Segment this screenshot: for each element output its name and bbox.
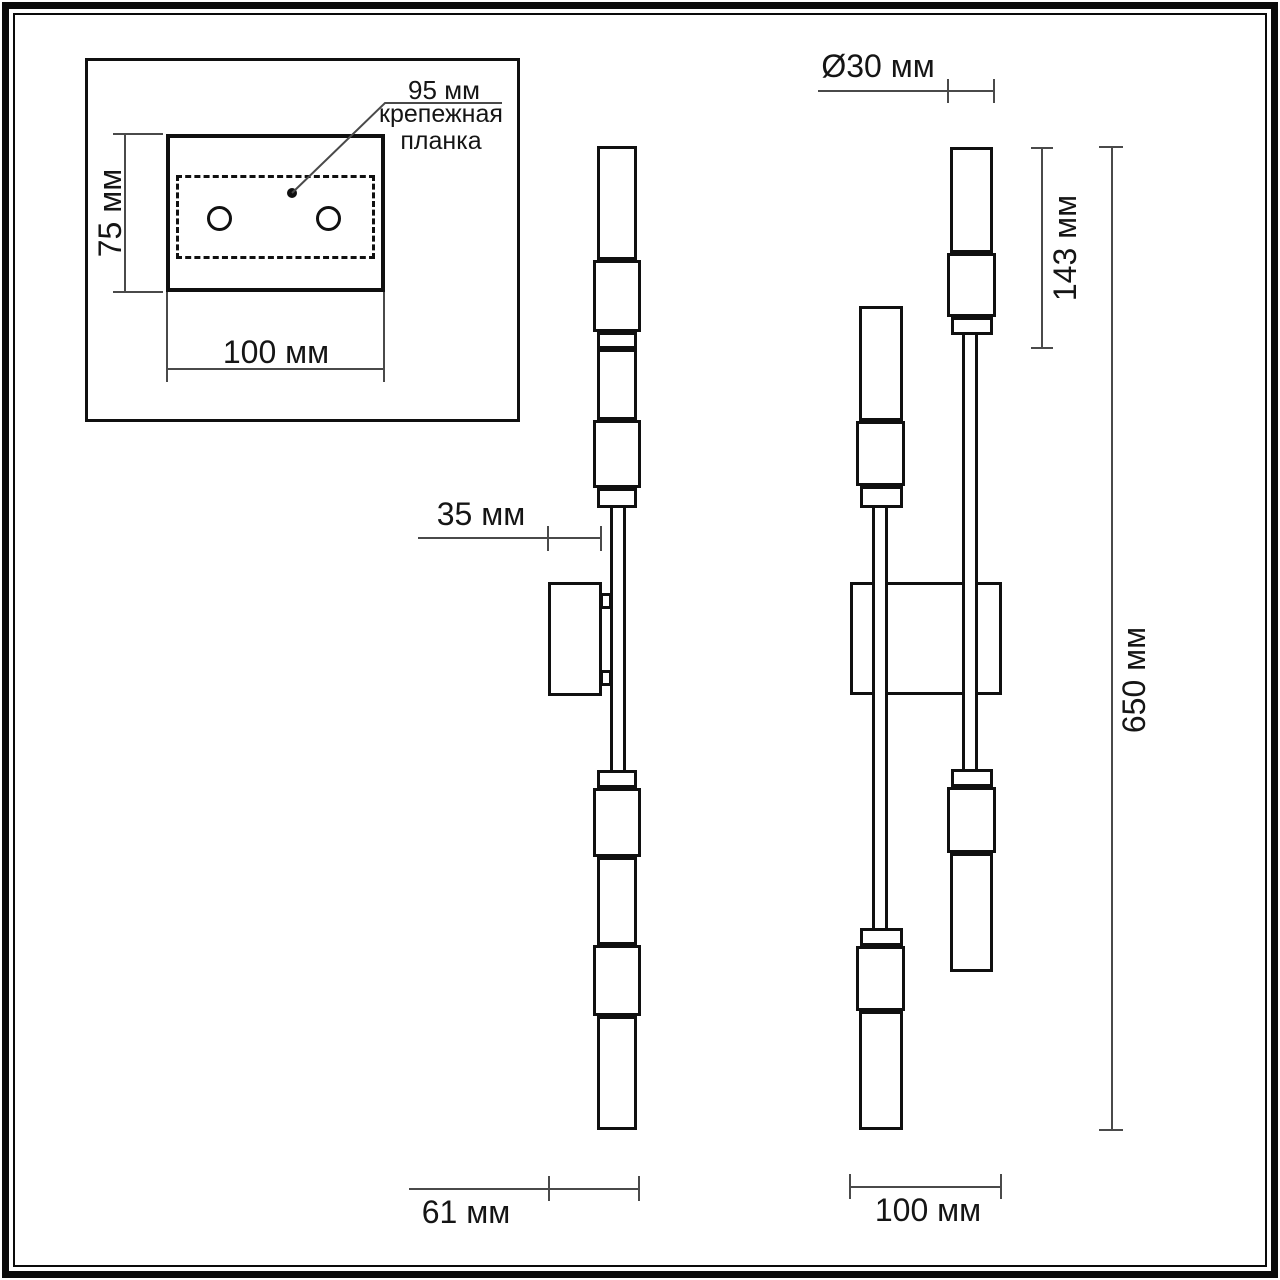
front-left-cap-top bbox=[860, 486, 903, 508]
front-right-stem-rod bbox=[962, 333, 978, 771]
label-mounting-bar-line1: крепежная bbox=[379, 100, 503, 128]
side-stem-rod bbox=[610, 506, 626, 772]
front-right-cap-top bbox=[951, 317, 993, 335]
dim-650mm-tick-top bbox=[1099, 146, 1123, 148]
dim-30mm-tick-right bbox=[993, 79, 995, 103]
front-left-tube-top bbox=[859, 306, 903, 421]
dim-650mm-label: 650 мм bbox=[1118, 627, 1150, 733]
dim-650mm-tick-bottom bbox=[1099, 1129, 1123, 1131]
front-left-block-top bbox=[856, 421, 905, 486]
dim-61mm-line bbox=[409, 1188, 640, 1190]
front-left-tube-bottom bbox=[859, 1011, 903, 1130]
front-right-tube-bottom bbox=[950, 853, 993, 972]
side-mount-tab-bottom bbox=[600, 670, 612, 686]
dim-35mm-label: 35 мм bbox=[437, 498, 525, 530]
dim-100mm-front-label: 100 мм bbox=[875, 1194, 981, 1226]
side-band bbox=[597, 332, 637, 349]
dim-143mm-line bbox=[1041, 148, 1043, 348]
dim-143mm-label: 143 мм bbox=[1049, 195, 1081, 301]
side-tube-bottom bbox=[597, 1016, 637, 1130]
dim-100mm-front-tick-left bbox=[849, 1174, 851, 1199]
dim-35mm-line bbox=[418, 537, 602, 539]
side-cap-upper bbox=[597, 488, 637, 508]
dim-143mm-tick-bottom bbox=[1031, 347, 1053, 349]
leader-line bbox=[0, 0, 1280, 1280]
front-right-block-top bbox=[947, 253, 996, 317]
side-cap-lower bbox=[597, 770, 637, 788]
dim-35mm-tick-left bbox=[547, 526, 549, 551]
dim-75mm-tick-top bbox=[113, 133, 163, 135]
dim-75mm-label: 75 мм bbox=[94, 169, 126, 257]
side-tube-top bbox=[597, 146, 637, 260]
dim-61mm-tick-right bbox=[638, 1176, 640, 1201]
front-right-tube-top bbox=[950, 147, 993, 253]
dim-30mm-line bbox=[818, 90, 995, 92]
dim-30mm-label: Ø30 мм bbox=[821, 50, 934, 82]
dim-35mm-tick-right bbox=[600, 526, 602, 551]
dim-61mm-tick-left bbox=[548, 1176, 550, 1201]
label-mounting-bar: крепежная планка bbox=[379, 101, 503, 155]
dim-100mm-front-tick-right bbox=[1000, 1174, 1002, 1199]
dim-61mm-label: 61 мм bbox=[422, 1196, 510, 1228]
side-wall-mount-box bbox=[548, 582, 602, 696]
side-block-upper-1 bbox=[593, 260, 641, 332]
dim-30mm-tick-left bbox=[947, 79, 949, 103]
side-block-lower-1 bbox=[593, 788, 641, 857]
front-left-block-bottom bbox=[856, 946, 905, 1011]
dim-100mm-inset-label: 100 мм bbox=[223, 336, 329, 368]
front-left-stem-rod bbox=[872, 506, 888, 930]
dim-143mm-tick-top bbox=[1031, 147, 1053, 149]
front-left-cap-bottom bbox=[860, 928, 903, 946]
side-block-upper-2 bbox=[593, 420, 641, 488]
side-mount-tab-top bbox=[600, 593, 612, 609]
label-mounting-bar-line2: планка bbox=[400, 127, 481, 155]
dim-75mm-tick-bottom bbox=[113, 291, 163, 293]
front-right-cap-bottom bbox=[951, 769, 993, 787]
dim-650mm-line bbox=[1111, 147, 1113, 1131]
front-right-block-bottom bbox=[947, 787, 996, 853]
dim-100mm-front-line bbox=[850, 1186, 1002, 1188]
side-tube-upper-2 bbox=[597, 349, 637, 420]
side-block-lower-2 bbox=[593, 945, 641, 1016]
side-tube-lower-1 bbox=[597, 857, 637, 945]
